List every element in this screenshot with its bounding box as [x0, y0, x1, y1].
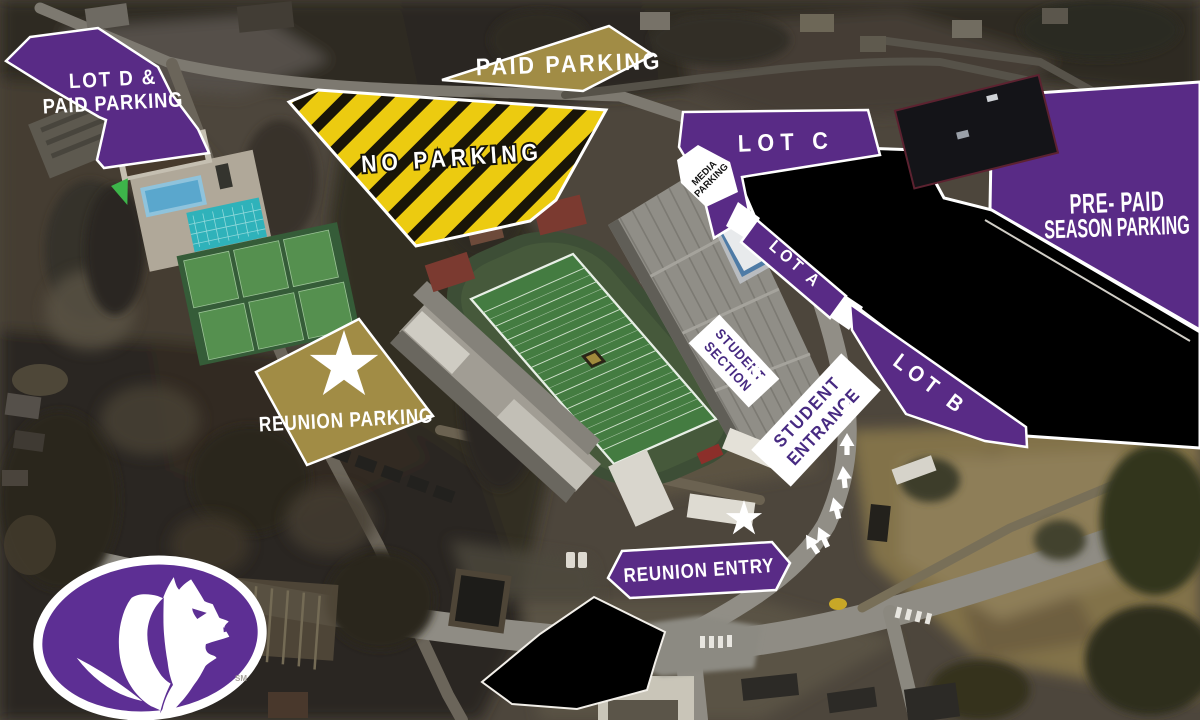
svg-text:SM: SM: [235, 674, 247, 683]
svg-text:SEASON PARKING: SEASON PARKING: [1044, 209, 1191, 244]
svg-text:LOT C: LOT C: [737, 126, 834, 157]
